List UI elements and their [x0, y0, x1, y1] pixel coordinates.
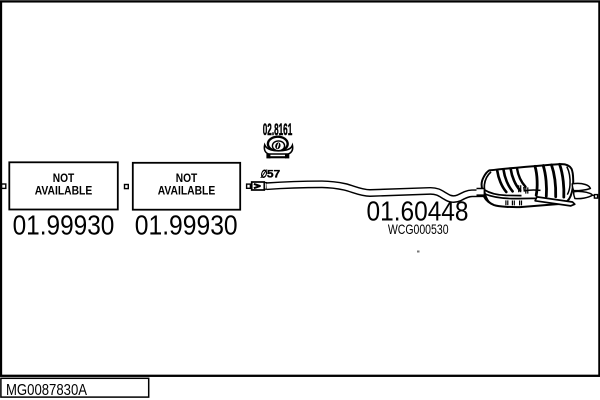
svg-text:AVAILABLE: AVAILABLE [158, 184, 216, 198]
svg-text:MG0087830A: MG0087830A [6, 382, 87, 399]
svg-text:01.99930: 01.99930 [13, 209, 115, 240]
svg-text:57: 57 [267, 169, 280, 181]
svg-text:WCG000530: WCG000530 [388, 222, 449, 237]
svg-text:AVAILABLE: AVAILABLE [35, 184, 93, 198]
svg-text:01.99930: 01.99930 [135, 209, 238, 240]
